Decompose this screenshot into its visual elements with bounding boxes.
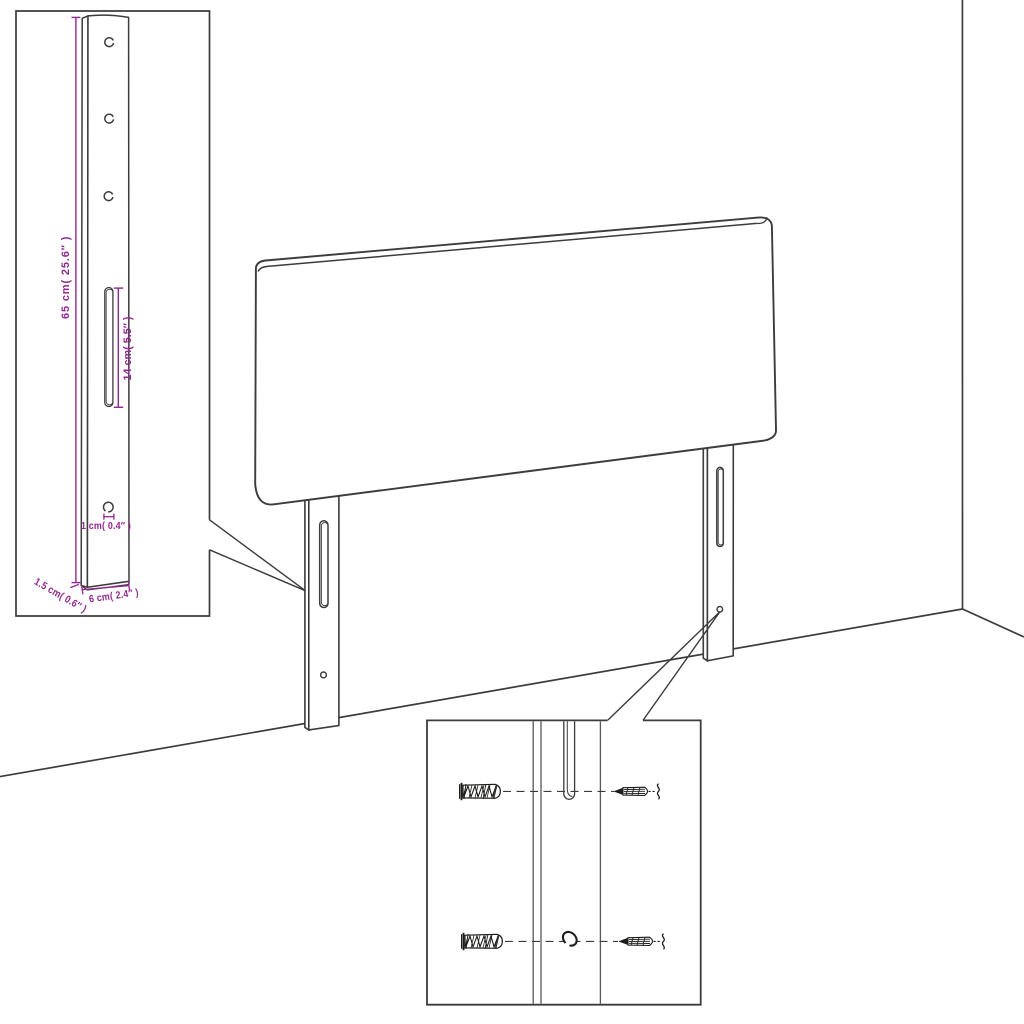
svg-text:14 cm( 5.5″ ): 14 cm( 5.5″ ): [122, 316, 134, 380]
svg-text:1 cm( 0.4″ ): 1 cm( 0.4″ ): [81, 520, 131, 532]
svg-text:65 cm( 25.6″ ): 65 cm( 25.6″ ): [60, 236, 72, 319]
